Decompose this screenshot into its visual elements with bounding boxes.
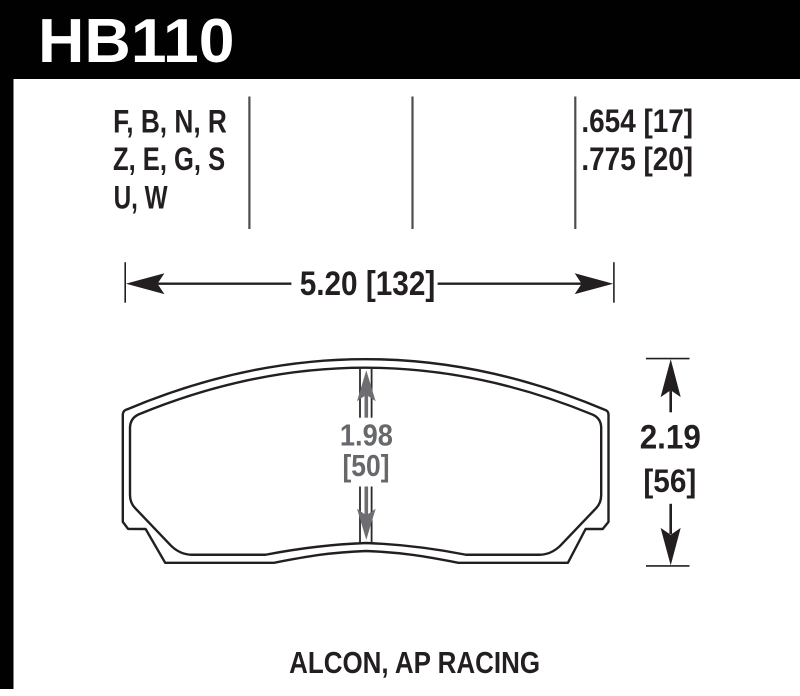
svg-text:ALCON, AP RACING: ALCON, AP RACING [289,646,540,680]
svg-text:.775 [20]: .775 [20] [581,141,693,177]
svg-text:Z, E, G, S: Z, E, G, S [113,141,225,177]
svg-text:.654 [17]: .654 [17] [581,103,693,139]
svg-text:2.19: 2.19 [640,419,701,457]
svg-text:F, B, N, R: F, B, N, R [113,103,227,139]
svg-text:U, W: U, W [114,179,169,215]
svg-text:[50]: [50] [343,448,390,483]
svg-text:5.20 [132]: 5.20 [132] [300,265,436,303]
svg-text:HB110: HB110 [38,7,235,76]
svg-text:[56]: [56] [643,462,696,499]
